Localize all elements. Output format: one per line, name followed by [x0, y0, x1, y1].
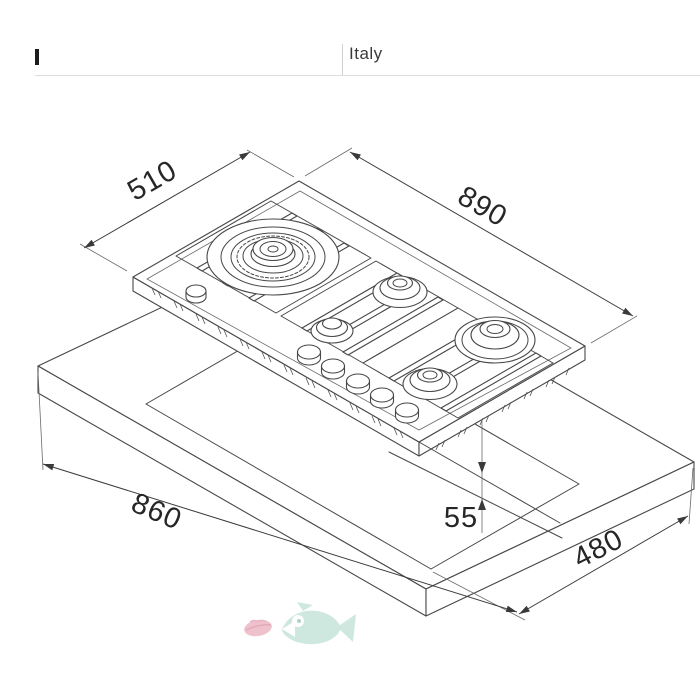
lips-icon — [243, 618, 273, 639]
burner-rear-center — [373, 276, 427, 308]
dim-label-hob-length: 890 — [452, 180, 513, 233]
fish-icon — [282, 602, 356, 644]
catalog-page: Italy — [0, 0, 700, 700]
dim-label-hob-width: 510 — [122, 154, 183, 207]
installation-diagram: 510 890 860 480 55 — [0, 0, 700, 700]
dim-label-cutout-length: 860 — [127, 487, 187, 537]
ignition-button — [186, 285, 206, 303]
fish-logo — [243, 602, 356, 644]
dim-label-front-gap: 55 — [444, 502, 478, 534]
burner-right — [455, 317, 535, 363]
burner-front-center — [403, 368, 457, 400]
wok-burner — [207, 219, 339, 295]
